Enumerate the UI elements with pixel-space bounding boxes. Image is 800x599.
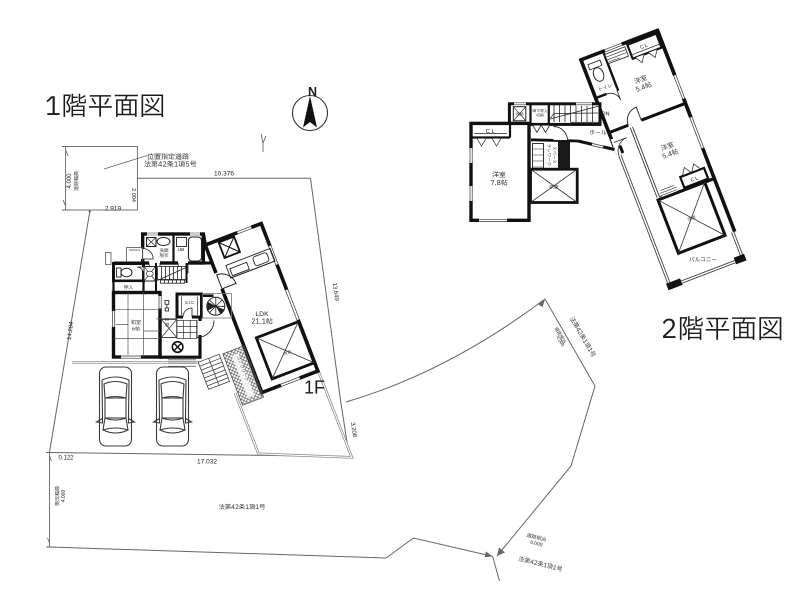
svg-text:DN: DN bbox=[602, 112, 610, 118]
svg-text:UB: UB bbox=[178, 247, 185, 253]
svg-text:N: N bbox=[308, 85, 317, 99]
svg-text:1F: 1F bbox=[304, 378, 325, 398]
svg-text:0.122: 0.122 bbox=[58, 456, 74, 462]
svg-text:4.000: 4.000 bbox=[67, 173, 73, 189]
svg-text:LDK: LDK bbox=[255, 311, 269, 318]
svg-text:2.919: 2.919 bbox=[105, 206, 122, 213]
svg-text:S.I.C: S.I.C bbox=[185, 300, 194, 305]
svg-text:17.032: 17.032 bbox=[197, 459, 217, 466]
svg-text:2.004: 2.004 bbox=[130, 188, 136, 202]
svg-text:10.376: 10.376 bbox=[214, 171, 234, 178]
svg-text:4.000: 4.000 bbox=[61, 490, 67, 503]
svg-text:CL: CL bbox=[486, 129, 496, 135]
